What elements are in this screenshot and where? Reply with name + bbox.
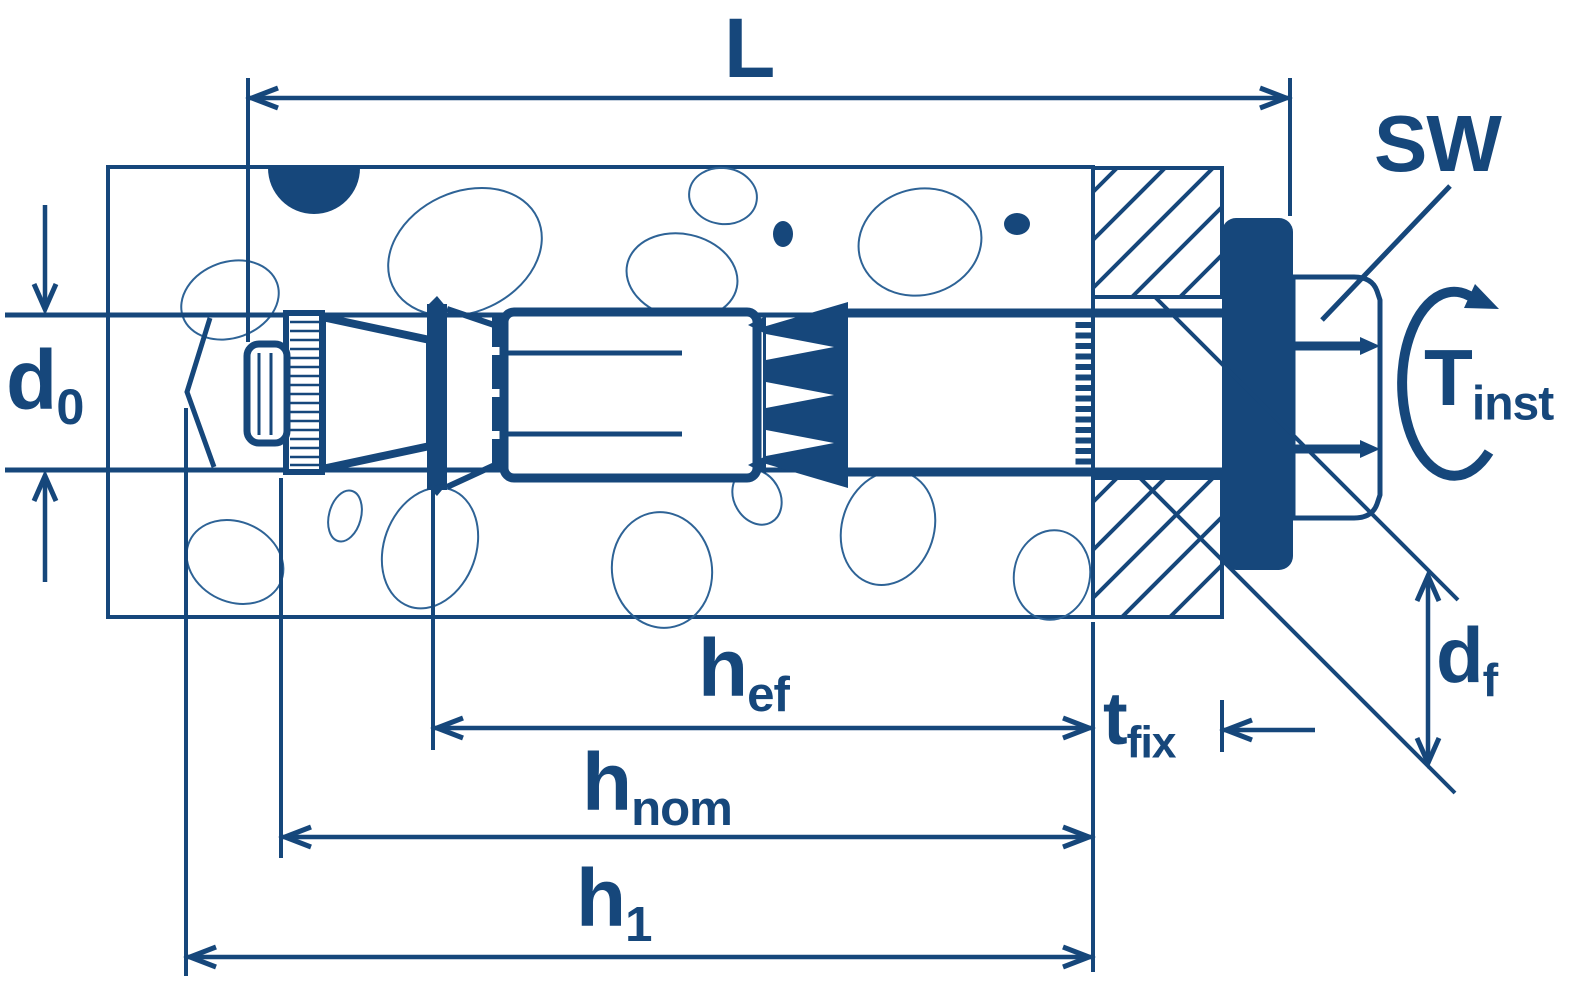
sleeve-body [504,312,757,478]
dimension-tfix [1222,700,1315,752]
label-flange-diameter-df: df [1436,616,1497,704]
label-effective-depth-hef: hef [698,628,789,719]
label-fixture-thickness-tfix: tfix [1103,682,1175,766]
label-install-torque-Tinst: Tinst [1424,338,1553,428]
expansion-cone [322,317,430,469]
label-hole-depth-h1: h1 [576,858,651,949]
diagram-canvas [0,0,1582,1001]
anti-rotation-fins [748,302,848,488]
anchor-bolt-tip [247,344,287,443]
label-nominal-depth-hnom: hnom [582,742,732,833]
fixture-plate [1093,168,1222,617]
label-drill-diameter-d0: d0 [6,338,83,433]
anchor-diagram: L SW Tinst d0 df hef tfix hnom h1 [0,0,1582,1001]
hex-nut [1293,277,1380,518]
label-length-L: L [724,6,774,90]
washer-flange [1222,218,1293,570]
label-wrench-size-SW: SW [1374,104,1501,184]
knurled-band [286,313,322,472]
